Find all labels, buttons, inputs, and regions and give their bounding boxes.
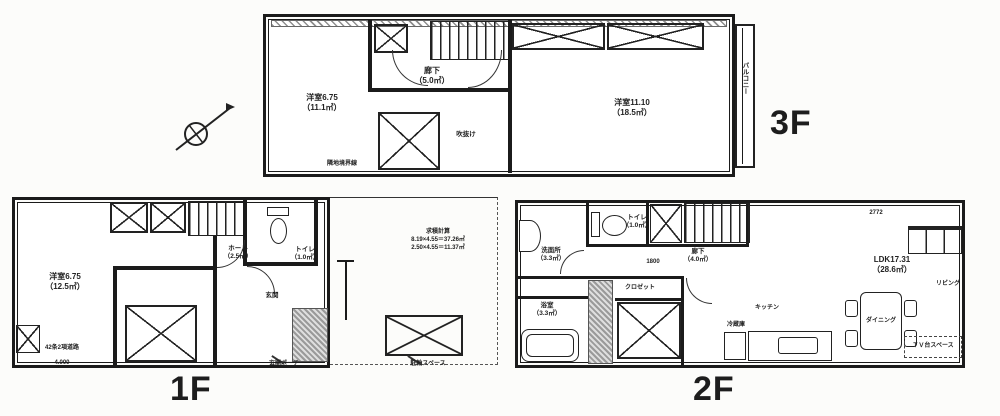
- f1-partition-wall: [113, 266, 117, 366]
- f1-parking-xbox: [385, 315, 463, 356]
- f1-storage-xbox: [125, 305, 197, 362]
- f2-partition-wall: [518, 276, 616, 279]
- f1-toilet-label: トイレ （1.0㎡）: [283, 246, 327, 263]
- f2-dining-label: ダイニング: [860, 318, 902, 326]
- f1-parking-note: 駐輪スペース: [398, 361, 458, 369]
- f2-sofa: [908, 226, 962, 254]
- f2-partition-wall: [615, 298, 681, 301]
- f2-fridge-label: 冷蔵庫: [722, 322, 750, 330]
- f1-floor-label: 1F: [170, 372, 212, 406]
- f2-kitchen-sink: [778, 337, 818, 354]
- f1-area-calc-block: 求積計算 8.19×4.55＝37.26㎡ 2.50×4.55＝11.37㎡: [390, 229, 486, 252]
- f2-ldk-label: LDK17.31 （28.6㎡）: [856, 255, 928, 276]
- f3-window-xbox-b: [607, 23, 704, 50]
- f2-dim-a: 2772: [864, 210, 888, 218]
- f2-chair: [845, 300, 858, 317]
- room-name: トイレ: [295, 246, 315, 253]
- room-area: （1.0㎡）: [623, 222, 652, 229]
- f1-entrance-label: 玄関: [254, 292, 290, 300]
- f2-void-xbox: [617, 302, 681, 359]
- room-area: （12.5㎡）: [45, 282, 85, 291]
- f2-floor-label: 2F: [693, 372, 735, 406]
- room-name: 廊下: [692, 248, 705, 255]
- f2-toilet-tank: [591, 212, 600, 237]
- f3-hall-label: 廊下 （5.0㎡）: [402, 66, 462, 87]
- room-name: LDK17.31: [874, 255, 910, 264]
- f1-toilet-bowl: [270, 218, 287, 244]
- f2-dim-b: 1800: [643, 259, 663, 267]
- f3-room-east-label: 洋室11.10 （18.5㎡）: [588, 98, 676, 119]
- room-area: （3.3㎡）: [537, 255, 566, 262]
- room-name: トイレ: [627, 214, 647, 221]
- f1-window-xbox-b: [150, 202, 186, 233]
- f3-balcony-label: バルコニー: [739, 62, 749, 142]
- f2-partition-wall: [613, 276, 684, 279]
- floor-plan-scan: 洋室6.75 （11.1㎡） 廊下 （5.0㎡） 洋室11.10 （18.5㎡）…: [0, 0, 1000, 416]
- f1-gate-post: [337, 260, 354, 262]
- f2-bathtub-inner: [526, 334, 574, 357]
- f1-entrance-porch-hatch: [292, 308, 328, 362]
- f2-partition-wall: [681, 276, 684, 368]
- f3-window-xbox-a: [512, 23, 605, 50]
- f3-boundary-note: 隣地境界線: [287, 161, 397, 169]
- f2-hall-label: 廊下 （4.0㎡）: [676, 248, 720, 265]
- calc-title: 求積計算: [426, 229, 450, 235]
- f3-partition-wall: [368, 88, 512, 92]
- room-name: 浴室: [541, 302, 554, 309]
- room-name: 洋室6.75: [49, 272, 81, 281]
- f2-partition-wall: [586, 244, 649, 247]
- f2-partition-wall: [586, 200, 589, 246]
- f2-kitchen-label: キッチン: [748, 305, 786, 313]
- f2-bath-label: 浴室 （3.3㎡）: [524, 302, 570, 319]
- f3-partition-wall: [508, 19, 512, 173]
- f1-toilet-tank: [267, 207, 289, 216]
- f2-toilet-label: トイレ （1.0㎡）: [617, 214, 657, 231]
- room-area: （11.1㎡）: [302, 103, 341, 112]
- f2-partition-wall: [518, 296, 588, 299]
- room-area: （18.5㎡）: [612, 108, 652, 117]
- f2-staircase: [684, 203, 750, 243]
- f2-chair: [904, 300, 917, 317]
- f2-closet-label: クロゼット: [614, 285, 666, 293]
- f1-road-width: 4.000: [44, 360, 80, 368]
- room-name: ホール: [228, 245, 248, 252]
- f1-room-west-label: 洋室6.75 （12.5㎡）: [28, 272, 102, 293]
- calc-line: 2.50×4.55＝11.37㎡: [411, 245, 465, 251]
- f1-window-xbox-a: [110, 202, 148, 233]
- f2-living-label: リビング: [932, 281, 964, 289]
- f1-gate-post: [345, 262, 347, 320]
- f3-closet-xbox: [374, 24, 408, 53]
- f2-partition-wall: [646, 244, 748, 247]
- room-area: （4.0㎡）: [684, 256, 713, 263]
- room-name: 洗面所: [541, 247, 561, 254]
- calc-line: 8.19×4.55＝37.26㎡: [411, 237, 465, 243]
- compass-icon: [172, 100, 236, 154]
- f3-room-west-label: 洋室6.75 （11.1㎡）: [283, 93, 361, 114]
- f2-fridge-box: [724, 332, 746, 360]
- f2-tv-note: ＴＶ台スペース: [906, 343, 960, 351]
- room-area: （2.5㎡）: [224, 253, 253, 260]
- f3-partition-wall: [368, 19, 372, 92]
- f3-floor-label: 3F: [770, 106, 812, 140]
- room-name: 廊下: [424, 66, 440, 75]
- f1-road-note: 42条2項道路: [30, 345, 94, 353]
- f2-washroom-label: 洗面所 （3.3㎡）: [526, 247, 576, 264]
- f1-porch-note: 玄関ポーチ: [258, 361, 310, 369]
- f2-chair: [845, 330, 858, 347]
- f1-staircase: [188, 201, 246, 236]
- room-area: （5.0㎡）: [414, 76, 449, 85]
- room-area: （28.6㎡）: [872, 265, 912, 274]
- room-area: （3.3㎡）: [533, 310, 562, 317]
- room-name: 洋室11.10: [614, 98, 650, 107]
- room-name: 洋室6.75: [306, 93, 338, 102]
- room-area: （1.0㎡）: [291, 254, 320, 261]
- f3-void-label: 吹抜け: [444, 131, 488, 139]
- f2-void-hatch: [588, 280, 613, 364]
- f1-partition-wall: [113, 266, 217, 270]
- f1-hall-label: ホール （2.5㎡）: [216, 245, 260, 262]
